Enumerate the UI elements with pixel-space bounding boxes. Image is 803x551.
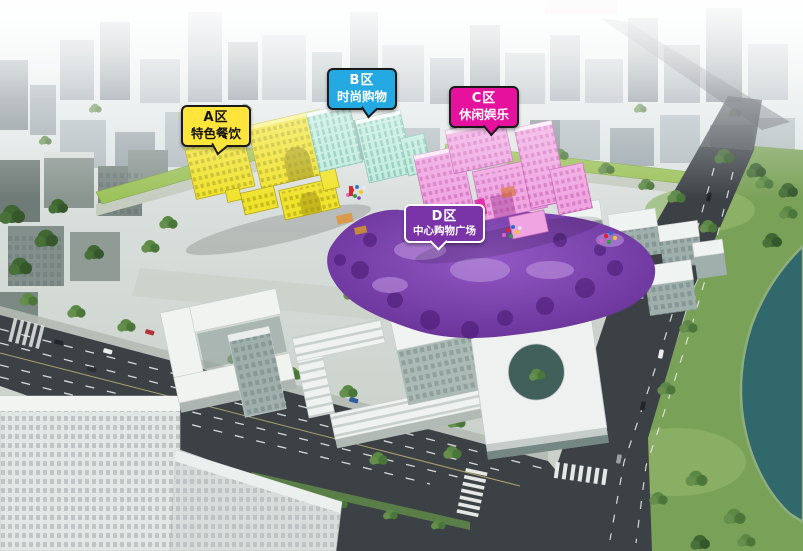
zone-d-name: 中心购物广场: [413, 225, 476, 238]
zone-a-id: A区: [190, 110, 242, 126]
zone-d-id: D区: [413, 209, 476, 225]
zone-d-callout: D区 中心购物广场: [404, 204, 485, 243]
zone-a-callout: A区 特色餐饮: [181, 105, 251, 147]
zone-b-callout: B区 时尚购物: [327, 68, 397, 110]
zone-c-callout: C区 休闲娱乐: [449, 86, 519, 128]
zone-a-name: 特色餐饮: [190, 126, 242, 142]
aerial-render: [0, 0, 803, 551]
site-plan: A区 特色餐饮 B区 时尚购物 C区 休闲娱乐 D区 中心购物广场: [0, 0, 803, 551]
zone-c-name: 休闲娱乐: [458, 107, 510, 123]
haze-top: [0, 0, 803, 100]
zone-c-id: C区: [458, 91, 510, 107]
zone-b-name: 时尚购物: [336, 89, 388, 105]
zone-b-id: B区: [336, 73, 388, 89]
